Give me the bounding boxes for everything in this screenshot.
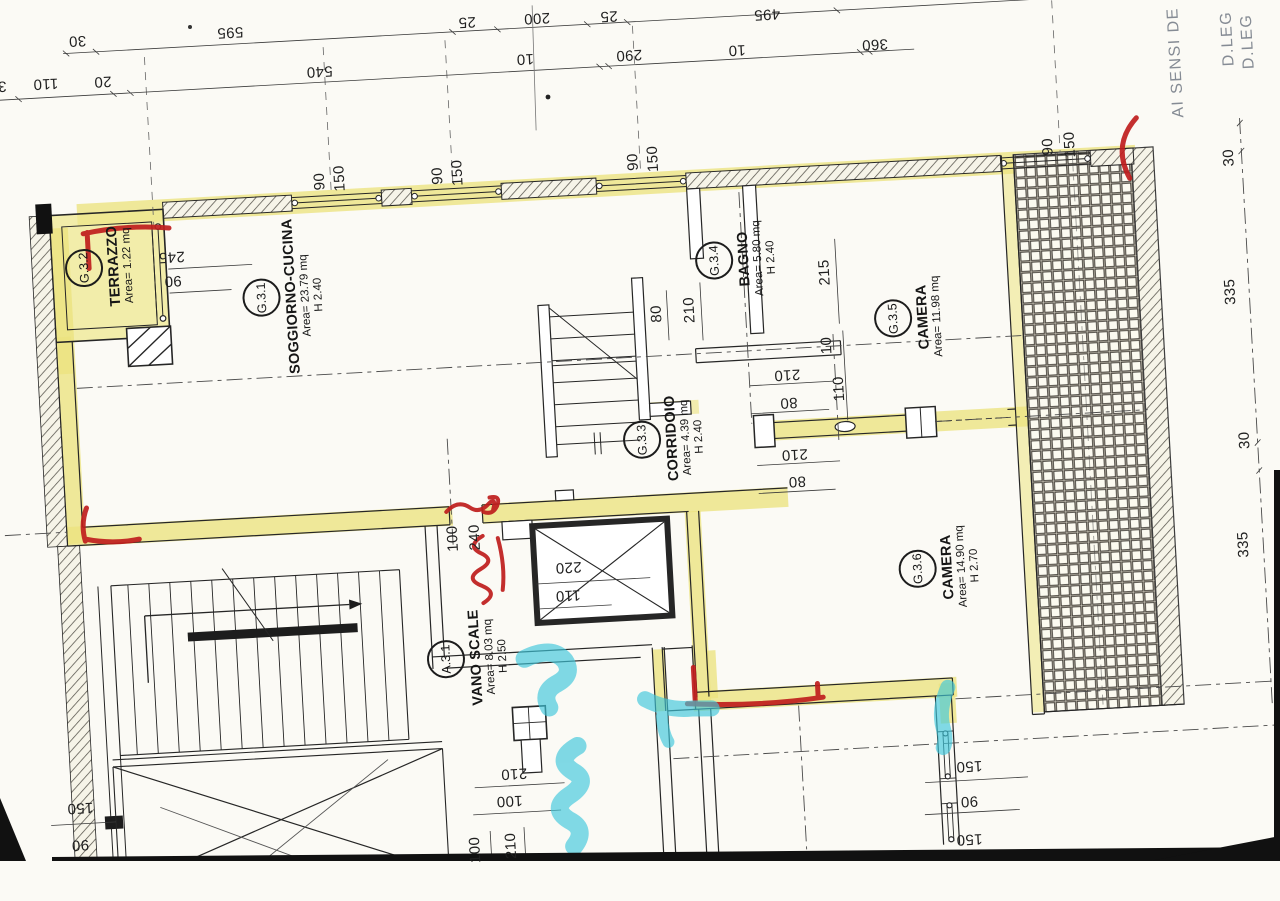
scanned-floor-plan-page: 3059525200254953011020540102901036090150…	[0, 0, 1280, 861]
internal-stair	[537, 275, 693, 457]
cyan-marker-marks	[524, 630, 955, 848]
bagno-walls	[687, 181, 841, 363]
crossed-room	[113, 742, 450, 861]
elevator-shaft	[532, 519, 672, 623]
floor-plan-svg	[0, 0, 1280, 861]
main-staircase	[91, 559, 416, 861]
yellow-highlights	[49, 150, 1167, 772]
top-exterior-wall	[163, 148, 1134, 218]
